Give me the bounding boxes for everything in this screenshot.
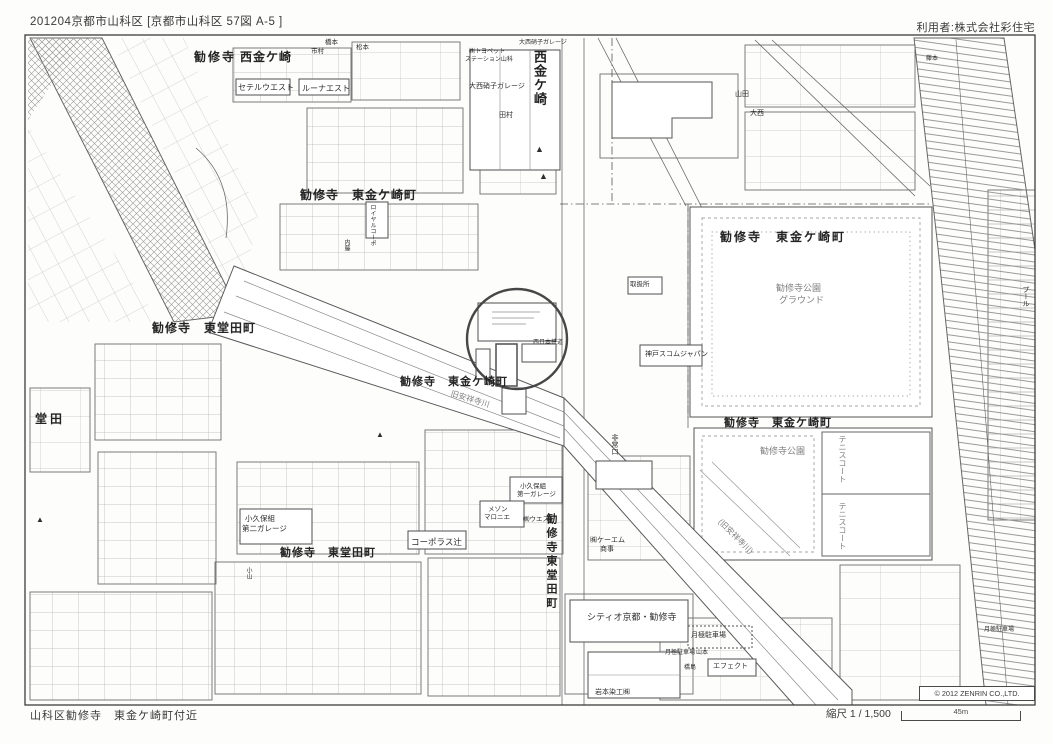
- map-drawing: [0, 0, 1053, 744]
- park-ground: [690, 207, 932, 417]
- park-lower: [694, 428, 932, 560]
- zenrin-map-sheet: 201204京都市山科区 [京都市山科区 57図 A-5 ] 利用者:株式会社彩…: [0, 0, 1053, 744]
- school-building: [612, 82, 712, 138]
- copyright-notice: © 2012 ZENRIN CO.,LTD.: [919, 686, 1035, 701]
